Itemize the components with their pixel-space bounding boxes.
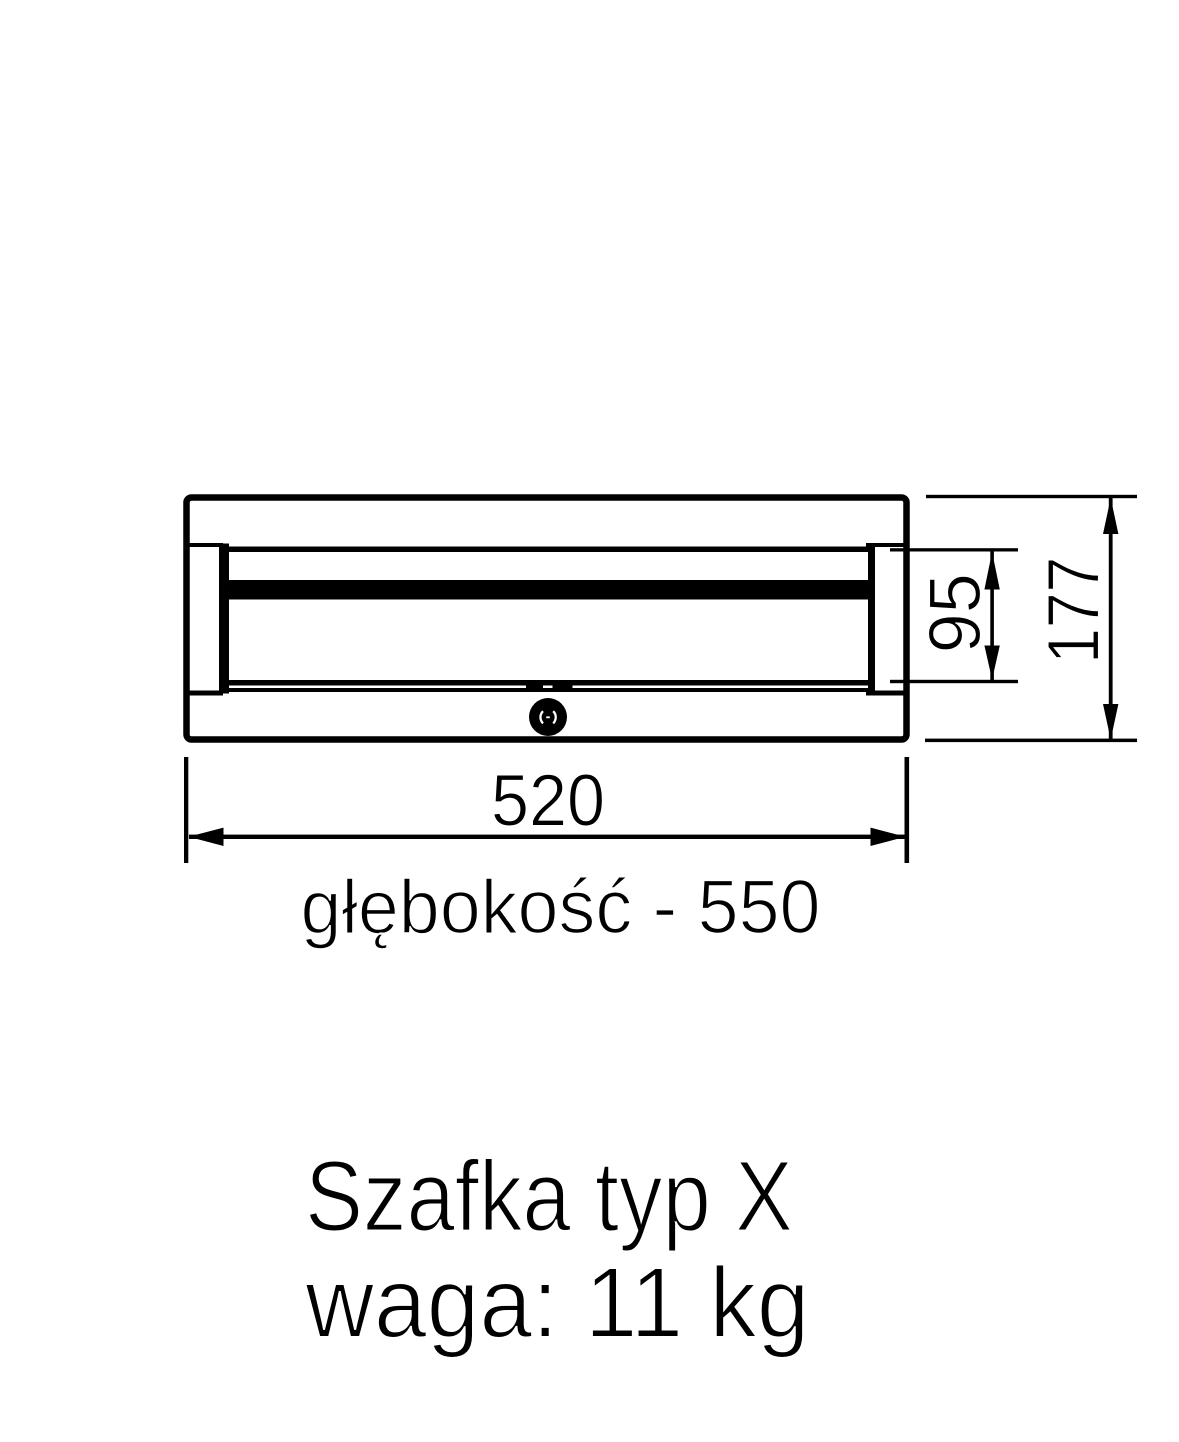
svg-text:520: 520 [491, 761, 605, 842]
svg-text:Szafka typ X: Szafka typ X [305, 1141, 793, 1253]
svg-text:177: 177 [1034, 557, 1115, 664]
svg-text:95: 95 [915, 573, 996, 653]
svg-text:głębokość - 550: głębokość - 550 [301, 865, 821, 950]
svg-text:waga: 11 kg: waga: 11 kg [305, 1247, 810, 1359]
